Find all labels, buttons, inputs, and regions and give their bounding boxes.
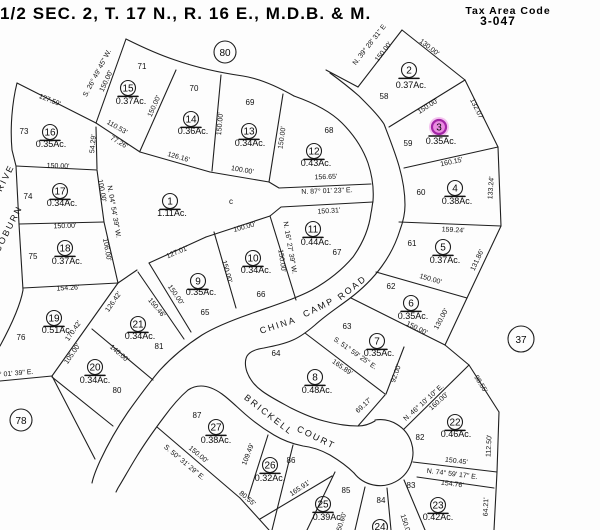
svg-text:0.48Ac.: 0.48Ac. bbox=[302, 385, 333, 395]
svg-text:0.44Ac.: 0.44Ac. bbox=[301, 237, 332, 247]
svg-text:14: 14 bbox=[185, 115, 197, 126]
svg-text:85: 85 bbox=[342, 486, 351, 495]
svg-text:0.37Ac.: 0.37Ac. bbox=[52, 256, 83, 266]
svg-text:0.35Ac.: 0.35Ac. bbox=[36, 139, 67, 149]
svg-text:81: 81 bbox=[155, 342, 164, 351]
svg-text:80: 80 bbox=[219, 48, 231, 59]
svg-text:63: 63 bbox=[343, 322, 352, 331]
svg-text:0.38Ac.: 0.38Ac. bbox=[201, 435, 232, 445]
svg-text:1.11Ac.: 1.11Ac. bbox=[157, 208, 187, 218]
svg-text:65: 65 bbox=[201, 308, 210, 317]
svg-text:159.24': 159.24' bbox=[442, 226, 465, 234]
svg-text:0.34Ac.: 0.34Ac. bbox=[241, 265, 272, 275]
svg-text:20: 20 bbox=[89, 363, 101, 374]
svg-text:75: 75 bbox=[29, 252, 38, 261]
svg-text:0.34Ac.: 0.34Ac. bbox=[47, 198, 78, 208]
svg-text:8: 8 bbox=[312, 373, 318, 384]
svg-text:17: 17 bbox=[54, 187, 66, 198]
svg-text:9: 9 bbox=[195, 277, 201, 288]
svg-text:64.21': 64.21' bbox=[483, 497, 491, 516]
svg-text:112.50': 112.50' bbox=[485, 435, 493, 458]
svg-text:1/2 SEC. 2, T. 17 N., R. 16 E.: 1/2 SEC. 2, T. 17 N., R. 16 E., M.D.B. &… bbox=[0, 4, 371, 23]
svg-text:3-047: 3-047 bbox=[480, 14, 516, 28]
svg-text:68: 68 bbox=[325, 126, 334, 135]
svg-text:0.35Ac.: 0.35Ac. bbox=[398, 311, 429, 321]
svg-text:59: 59 bbox=[404, 139, 413, 148]
svg-text:37: 37 bbox=[515, 335, 527, 346]
svg-text:73: 73 bbox=[20, 127, 29, 136]
svg-text:74: 74 bbox=[24, 192, 33, 201]
svg-text:c: c bbox=[229, 197, 233, 206]
svg-text:3: 3 bbox=[436, 123, 442, 134]
svg-text:83: 83 bbox=[407, 481, 416, 490]
svg-text:0.32Ac.: 0.32Ac. bbox=[255, 473, 286, 483]
svg-text:0.38Ac.: 0.38Ac. bbox=[442, 196, 473, 206]
svg-text:154.26': 154.26' bbox=[56, 284, 79, 292]
svg-text:87: 87 bbox=[193, 411, 202, 420]
svg-text:150.00': 150.00' bbox=[47, 163, 70, 171]
svg-text:4: 4 bbox=[452, 184, 458, 195]
svg-text:18: 18 bbox=[59, 244, 71, 255]
svg-text:0.34Ac.: 0.34Ac. bbox=[235, 138, 266, 148]
svg-text:23: 23 bbox=[432, 501, 444, 512]
svg-text:7: 7 bbox=[374, 337, 380, 348]
svg-text:21: 21 bbox=[132, 320, 144, 331]
svg-text:0.35Ac.: 0.35Ac. bbox=[426, 136, 457, 146]
svg-text:67: 67 bbox=[333, 248, 342, 257]
svg-text:12: 12 bbox=[308, 147, 320, 158]
svg-text:70: 70 bbox=[190, 84, 199, 93]
svg-text:0.36Ac.: 0.36Ac. bbox=[178, 126, 209, 136]
svg-text:0.35Ac.: 0.35Ac. bbox=[186, 287, 217, 297]
svg-text:0.34Ac.: 0.34Ac. bbox=[80, 375, 111, 385]
svg-text:64: 64 bbox=[272, 349, 281, 358]
svg-text:0.34Ac.: 0.34Ac. bbox=[125, 331, 156, 341]
svg-text:61: 61 bbox=[408, 239, 417, 248]
svg-text:0.43Ac.: 0.43Ac. bbox=[301, 158, 332, 168]
svg-text:1: 1 bbox=[167, 197, 173, 208]
svg-text:60: 60 bbox=[417, 188, 426, 197]
svg-text:58: 58 bbox=[380, 92, 389, 101]
svg-text:78: 78 bbox=[15, 416, 27, 427]
svg-text:86: 86 bbox=[287, 456, 296, 465]
svg-text:10: 10 bbox=[247, 254, 259, 265]
svg-text:0.37Ac.: 0.37Ac. bbox=[430, 255, 461, 265]
svg-text:16: 16 bbox=[44, 128, 56, 139]
svg-text:0.42Ac.: 0.42Ac. bbox=[423, 512, 454, 522]
svg-text:69: 69 bbox=[246, 98, 255, 107]
svg-text:27: 27 bbox=[210, 423, 222, 434]
svg-text:2: 2 bbox=[406, 66, 412, 77]
svg-text:156.65': 156.65' bbox=[314, 174, 337, 182]
svg-text:0.35Ac.: 0.35Ac. bbox=[364, 348, 395, 358]
svg-text:15: 15 bbox=[122, 84, 134, 95]
svg-text:11: 11 bbox=[308, 225, 319, 236]
svg-text:150.00': 150.00' bbox=[53, 223, 76, 231]
svg-text:24: 24 bbox=[374, 522, 386, 530]
svg-text:80: 80 bbox=[113, 386, 122, 395]
svg-text:82: 82 bbox=[416, 433, 425, 442]
svg-text:26: 26 bbox=[264, 461, 276, 472]
svg-text:25: 25 bbox=[317, 500, 329, 511]
svg-text:0.37Ac.: 0.37Ac. bbox=[396, 80, 427, 90]
svg-text:0.37Ac.: 0.37Ac. bbox=[116, 96, 147, 106]
svg-text:71: 71 bbox=[138, 62, 147, 71]
svg-text:6: 6 bbox=[408, 299, 414, 310]
svg-text:13: 13 bbox=[243, 127, 255, 138]
svg-text:5: 5 bbox=[440, 243, 446, 254]
svg-text:22: 22 bbox=[449, 418, 461, 429]
svg-text:84: 84 bbox=[377, 496, 386, 505]
svg-text:19: 19 bbox=[48, 314, 60, 325]
svg-text:62: 62 bbox=[387, 282, 396, 291]
svg-text:66: 66 bbox=[257, 290, 266, 299]
svg-text:0.46Ac.: 0.46Ac. bbox=[441, 429, 472, 439]
svg-text:76: 76 bbox=[17, 333, 26, 342]
